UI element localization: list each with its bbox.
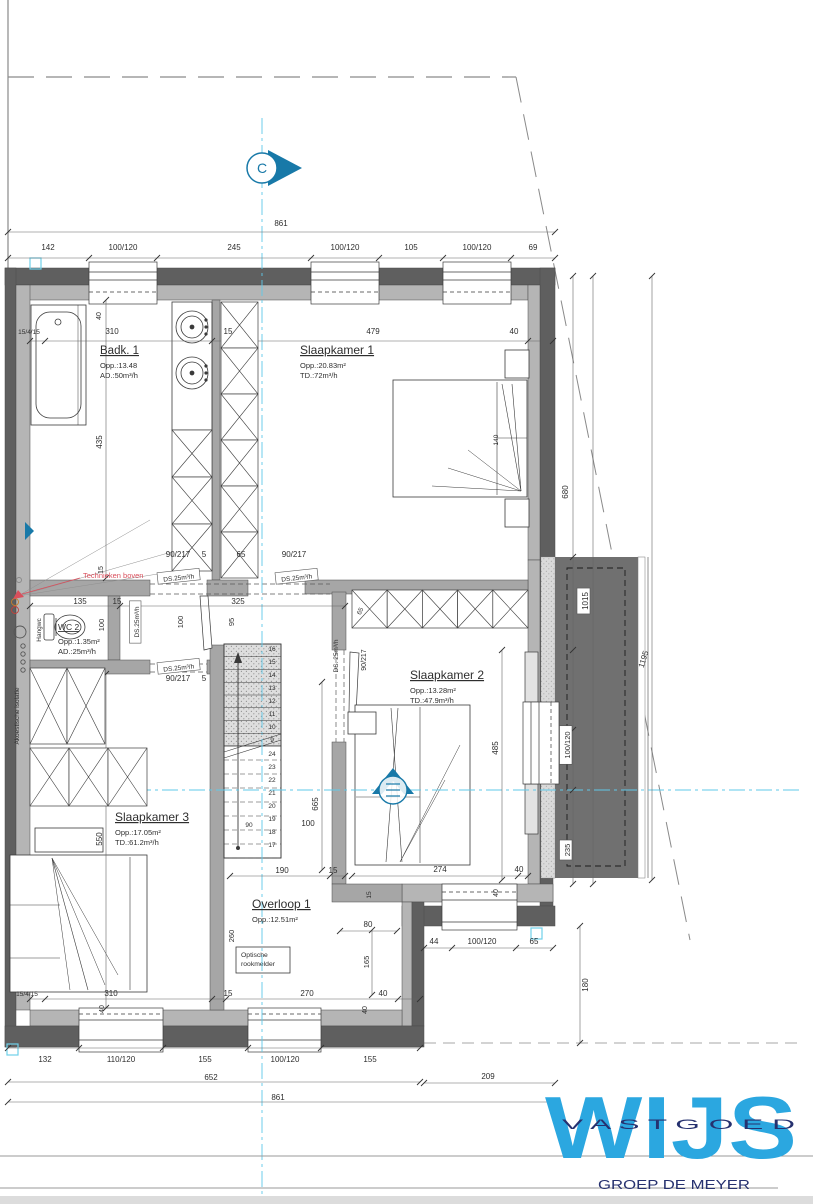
stair-number: 18: [268, 829, 276, 836]
stair-number: 10: [268, 724, 276, 731]
dimension-label: 155: [198, 1055, 212, 1064]
door-leaf: [200, 596, 212, 650]
room-area-wc2: Opp.:1.35m²: [58, 637, 100, 646]
dimension-label: 40: [379, 989, 388, 998]
floor-plan-sheet: Optische rookmelder C 161514131211109242…: [0, 0, 813, 1204]
nightstand: [505, 350, 529, 378]
dimension-label: 15: [224, 989, 233, 998]
nightstand: [348, 712, 376, 734]
dimension-label: 95: [227, 618, 236, 626]
title-block: WIJS V A S T G O E D GROEP DE MEYER: [0, 1078, 813, 1204]
dimension-label: 44: [430, 937, 439, 946]
stair-number: 13: [268, 685, 276, 692]
dimension-label: Akoestische isolatie: [14, 687, 21, 744]
dimension-label: 100/120: [331, 243, 360, 252]
dimension-label: 165: [362, 956, 371, 969]
dimension-label: 110/120: [107, 1055, 136, 1064]
dimension-label: 15/4/15: [18, 329, 40, 336]
sheet-bottom-bar: [0, 1196, 813, 1204]
dimension-label: 40: [510, 327, 519, 336]
dimension-label: 310: [105, 327, 119, 336]
dimension-label: 861: [271, 1093, 285, 1102]
smoke-detector-label: rookmelder: [241, 961, 276, 968]
dimension-label: 65: [237, 550, 246, 559]
dimension-label: 100/120: [109, 243, 138, 252]
room-label-slaapkamer3: Slaapkamer 3: [115, 810, 189, 824]
dimension-label: Hangwc: [36, 618, 43, 642]
dimension-label: 180: [581, 978, 590, 992]
vanity-sinks: [172, 302, 212, 430]
dimension-label: 90: [245, 822, 253, 829]
dimension-label: 40: [362, 1006, 369, 1014]
dimension-label: 861: [274, 219, 288, 228]
dimension-label: DS.25m³/h: [134, 606, 141, 637]
dimension-label: 155: [363, 1055, 377, 1064]
room-area-badk1: Opp.:13.48: [100, 361, 137, 370]
dimension-label: 132: [38, 1055, 52, 1064]
stair-number: 15: [268, 659, 276, 666]
dimension-label: 80: [364, 920, 373, 929]
room-vent-slaapkamer2: TD.:47.9m³/h: [410, 696, 454, 705]
dimension-label: 310: [104, 989, 118, 998]
window-top-3: [443, 262, 511, 304]
dimension-label: 325: [231, 597, 245, 606]
stair-number: 9: [270, 737, 274, 744]
dimension-label: 105: [404, 243, 418, 252]
dimension-label: 665: [311, 797, 320, 811]
dimension-label: 15/4/15: [16, 991, 38, 998]
dimension-label: 65: [530, 937, 539, 946]
logo-vastgoed: V A S T G O E D: [562, 1116, 795, 1132]
dimension-label: 90/217: [361, 649, 368, 671]
room-label-slaapkamer2: Slaapkamer 2: [410, 668, 484, 682]
bed-slaapkamer3: [10, 828, 147, 992]
dimension-label: 135: [73, 597, 87, 606]
room-area-slaapkamer3: Opp.:17.05m²: [115, 828, 161, 837]
dimension-label: 209: [481, 1072, 495, 1081]
stair-number: 11: [269, 711, 276, 718]
dimension-label: 680: [561, 485, 570, 499]
stair-number: 17: [268, 842, 276, 849]
dimension-label: 40: [96, 312, 103, 320]
dimension-label: 40: [515, 865, 524, 874]
room-area-overloop1: Opp.:12.51m²: [252, 915, 298, 924]
stair-number: 24: [268, 751, 276, 758]
room-vent-slaapkamer3: TD.:61.2m³/h: [115, 838, 159, 847]
stair-number: 22: [268, 777, 276, 784]
room-area-slaapkamer2: Opp.:13.28m²: [410, 686, 456, 695]
dimension-label: 15: [366, 891, 373, 899]
smoke-detector-label: Optische: [241, 952, 268, 959]
room-area-slaapkamer1: Opp.:20.83m²: [300, 361, 346, 370]
floor-plan-canvas: Optische rookmelder C 161514131211109242…: [0, 0, 813, 1204]
bathtub: [31, 305, 86, 425]
dimension-label: 435: [95, 435, 104, 449]
stair-number: 16: [268, 646, 276, 653]
dimension-label: 100: [97, 619, 106, 632]
window-top-2: [311, 262, 379, 304]
stair-number: 12: [268, 698, 276, 705]
dimension-label: 15: [224, 327, 233, 336]
dimension-label: 100: [301, 819, 315, 828]
dimension-label: 40: [493, 889, 500, 897]
dimension-label: 5: [202, 550, 207, 559]
dimension-label: 485: [491, 741, 500, 755]
window-slaapkamer2-south: [442, 884, 517, 930]
dimension-label: 100/120: [463, 243, 492, 252]
stair-number: 14: [268, 672, 276, 679]
smoke-detector: Optische rookmelder: [236, 947, 290, 973]
room-label-slaapkamer1: Slaapkamer 1: [300, 343, 374, 357]
dimension-label: 15: [329, 866, 338, 875]
dimension-label: 90/217: [166, 550, 191, 559]
dimension-label: DS. 25m³/h: [333, 639, 340, 672]
dimension-label: 190: [275, 866, 289, 875]
headboard-shelf: [35, 828, 103, 852]
dimension-label: 274: [433, 865, 447, 874]
dimension-label: 235: [563, 844, 572, 857]
window-top-1: [89, 262, 157, 304]
logo-groep-de-meyer: GROEP DE MEYER: [598, 1177, 750, 1192]
dimension-label: 90/217: [282, 550, 307, 559]
window-bottom-2: [248, 1008, 321, 1052]
dimension-label: 100/120: [468, 937, 497, 946]
room-label-overloop1: Overloop 1: [252, 897, 311, 911]
dimension-label: 550: [95, 832, 104, 846]
bed-slaapkamer2: [348, 705, 470, 865]
dimension-label: 140: [493, 434, 500, 445]
room-vent-wc2: AD.:25m³/h: [58, 647, 96, 656]
bed-slaapkamer1: [393, 350, 529, 527]
room-label-badk1: Badk. 1: [100, 345, 139, 357]
stair-number: 19: [268, 816, 276, 823]
dimension-label: 100: [176, 616, 185, 629]
dimension-label: 245: [227, 243, 241, 252]
stair-number: 20: [268, 803, 276, 810]
nightstand: [505, 499, 529, 527]
dimension-label: 40: [99, 1005, 106, 1013]
dimension-label: 142: [41, 243, 55, 252]
dimension-label: 1015: [581, 592, 590, 610]
section-marker-c: C: [247, 150, 302, 186]
dimension-label: 260: [227, 930, 236, 943]
dimension-label: 15: [113, 597, 122, 606]
dimension-label: 100/120: [271, 1055, 300, 1064]
section-marker-c-letter: C: [257, 160, 267, 176]
window-bottom-1: [79, 1008, 163, 1052]
dimension-label: 479: [366, 327, 380, 336]
room-label-wc2: WC 2: [58, 622, 80, 632]
stair-number: 21: [268, 790, 276, 797]
dimension-label: Technieken boven: [83, 571, 143, 580]
dimension-label: 90/217: [166, 674, 191, 683]
dimension-label: 270: [300, 989, 314, 998]
dimension-label: 5: [202, 674, 207, 683]
room-vent-slaapkamer1: TD.:72m³/h: [300, 371, 338, 380]
dimension-label: 652: [204, 1073, 218, 1082]
stair-number: 23: [268, 764, 276, 771]
dimension-label: 69: [529, 243, 538, 252]
room-vent-badk1: AD.:50m³/h: [100, 371, 138, 380]
dimension-label: 100/120: [563, 731, 572, 758]
